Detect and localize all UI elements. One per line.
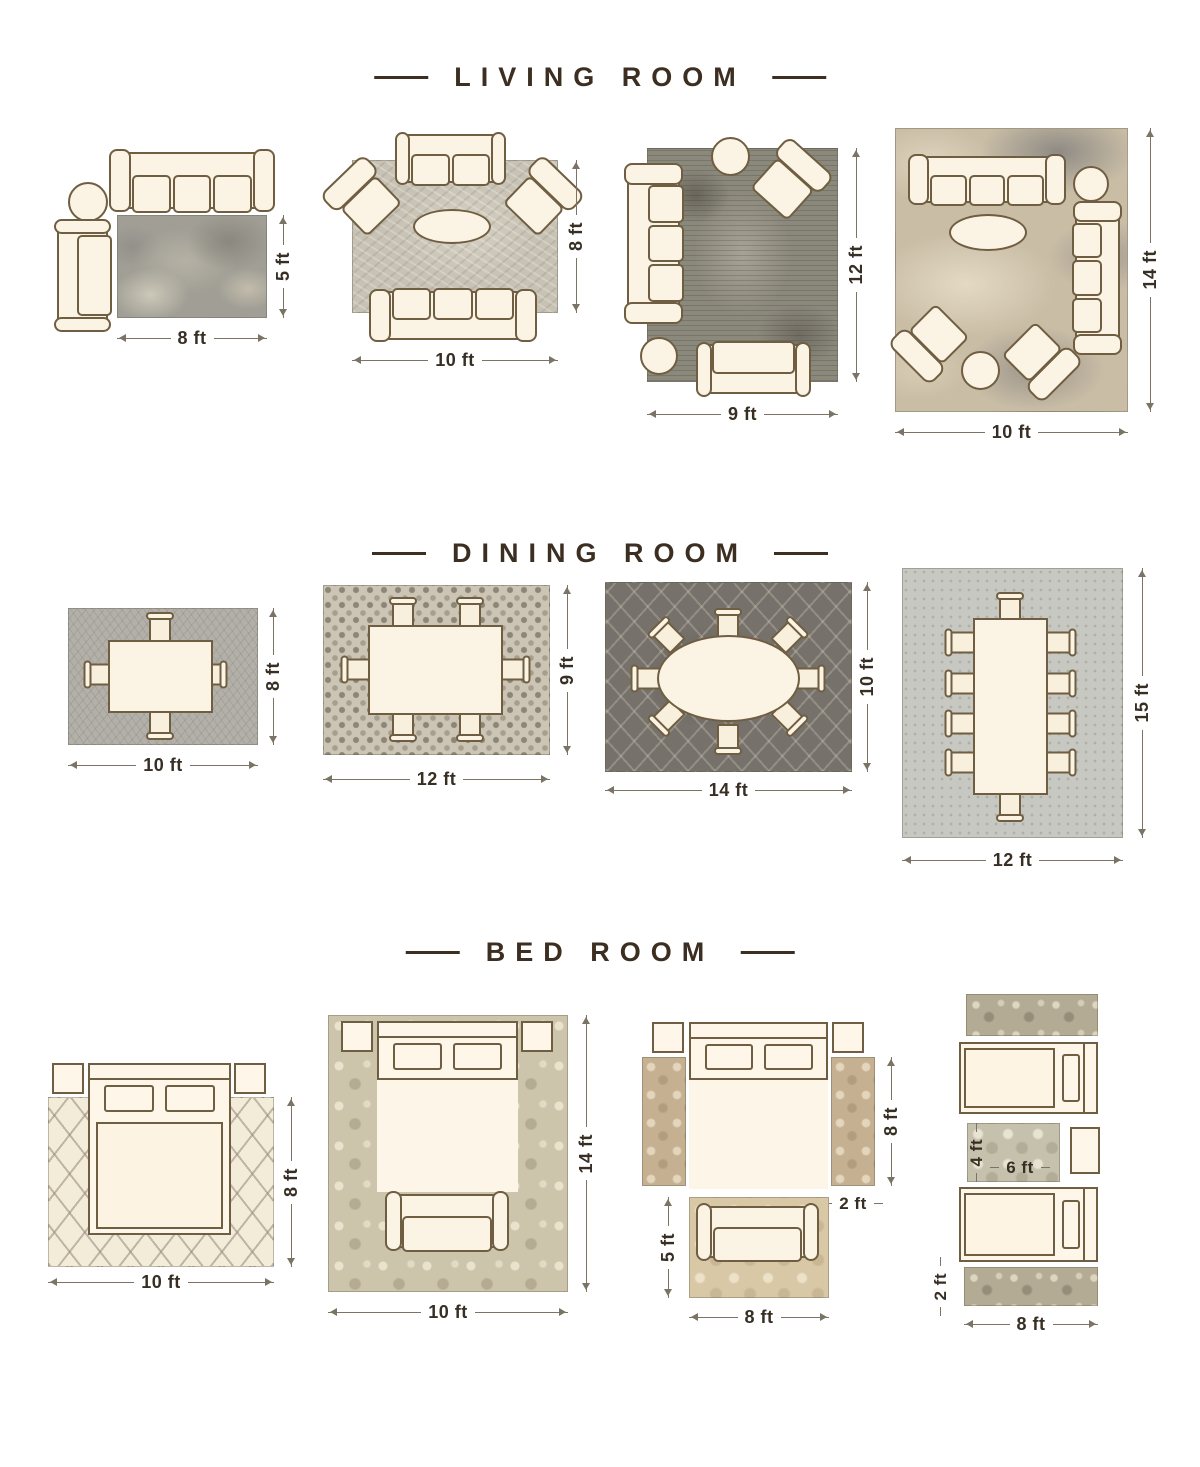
height-dimension: 8 ft [566, 160, 586, 313]
loveseat-icon [398, 134, 503, 183]
nightstand-icon [521, 1021, 553, 1052]
nightstand-icon [652, 1022, 684, 1053]
dining-chair-icon [146, 612, 174, 643]
height-dimension: 5 ft [273, 215, 293, 318]
height-dimension: 15 ft [1132, 568, 1152, 838]
runner-width-dimension: 2 ft [824, 1193, 882, 1213]
dining-table-icon [973, 618, 1048, 795]
bench-icon [699, 1206, 816, 1258]
oval-coffee-table-icon [413, 209, 491, 244]
front-rug-width-dimension: 8 ft [689, 1307, 829, 1327]
nightstand-icon [52, 1063, 84, 1094]
width-dimension: 10 ft [352, 350, 558, 370]
dining-table-icon [368, 625, 503, 715]
round-side-table-icon [68, 182, 108, 222]
width-dimension: 14 ft [605, 780, 852, 800]
dining-table-icon [108, 640, 213, 713]
oval-coffee-table-icon [949, 214, 1027, 251]
sofa-icon [627, 167, 680, 320]
width-dimension: 10 ft [328, 1302, 568, 1322]
section-title-text: DINING ROOM [452, 538, 748, 569]
dining-chair-icon [945, 749, 976, 777]
height-dimension: 8 ft [263, 608, 283, 745]
section-title-bed-room: BED ROOM [406, 937, 795, 968]
round-side-table-icon [711, 137, 750, 176]
dining-chair-icon [1046, 710, 1077, 738]
dining-chair-icon [341, 656, 372, 684]
height-dimension: 14 ft [1140, 128, 1160, 412]
title-rule-left [374, 76, 428, 79]
width-dimension: 10 ft [68, 755, 258, 775]
dining-chair-icon [945, 710, 976, 738]
title-rule-left [406, 951, 460, 954]
title-rule-right [774, 552, 828, 555]
round-side-table-icon [961, 351, 1000, 390]
front-rug-height-dimension: 5 ft [658, 1197, 678, 1298]
twin-bed-icon [959, 1187, 1098, 1262]
height-dimension: 9 ft [557, 585, 577, 755]
dining-chair-icon [456, 711, 484, 742]
height-dimension: 12 ft [846, 148, 866, 382]
loveseat-icon [699, 344, 808, 394]
width-dimension: 12 ft [902, 850, 1123, 870]
title-rule-right [740, 951, 794, 954]
runner-rug [966, 994, 1098, 1036]
bed-icon [377, 1021, 518, 1192]
sofa-icon [912, 156, 1062, 203]
dining-chair-icon [456, 597, 484, 628]
section-title-text: BED ROOM [486, 937, 715, 968]
nightstand-icon [234, 1063, 266, 1094]
runner-length-dimension: 8 ft [964, 1314, 1098, 1334]
dining-chair-icon [500, 656, 531, 684]
height-dimension: 8 ft [281, 1097, 301, 1267]
width-dimension: 8 ft [117, 328, 267, 348]
center-rug-height-dimension: 4 ft [966, 1123, 986, 1182]
dining-chair-icon [945, 670, 976, 698]
nightstand-icon [1070, 1127, 1100, 1174]
title-rule-right [772, 76, 826, 79]
area-rug-8x5 [117, 215, 267, 318]
bed-icon [88, 1063, 231, 1235]
section-title-living-room: LIVING ROOM [374, 62, 826, 93]
nightstand-icon [832, 1022, 864, 1053]
sofa-icon [373, 291, 533, 340]
dining-chair-icon [714, 724, 742, 755]
dining-chair-icon [1046, 749, 1077, 777]
dining-chair-icon [996, 791, 1024, 822]
oval-dining-table-icon [657, 635, 800, 722]
dining-chair-icon [389, 597, 417, 628]
dining-chair-icon [1046, 670, 1077, 698]
section-title-text: LIVING ROOM [454, 62, 746, 93]
bench-icon [388, 1194, 506, 1248]
runner-rug [964, 1267, 1098, 1306]
sofa-icon [113, 152, 271, 209]
dining-chair-icon [146, 709, 174, 740]
side-runner-rug [642, 1057, 686, 1186]
width-dimension: 9 ft [647, 404, 838, 424]
height-dimension: 10 ft [857, 582, 877, 772]
dining-chair-icon [1046, 629, 1077, 657]
width-dimension: 10 ft [48, 1272, 274, 1292]
round-side-table-icon [1073, 166, 1109, 202]
center-rug-width-dimension: 6 ft [984, 1157, 1056, 1177]
bench-icon [57, 222, 108, 329]
height-dimension: 14 ft [576, 1015, 596, 1292]
side-runner-rug [831, 1057, 875, 1186]
width-dimension: 10 ft [895, 422, 1128, 442]
round-side-table-icon [640, 337, 678, 375]
sofa-icon [1075, 205, 1120, 351]
runner-length-dimension: 8 ft [881, 1057, 901, 1186]
twin-bed-icon [959, 1042, 1098, 1114]
rug-size-guide: LIVING ROOM 8 ft 5 ft 10 ft 8 ft [0, 0, 1200, 1467]
runner-width-dimension: 2 ft [930, 1262, 950, 1311]
dining-chair-icon [945, 629, 976, 657]
dining-chair-icon [389, 711, 417, 742]
title-rule-left [372, 552, 426, 555]
nightstand-icon [341, 1021, 373, 1052]
width-dimension: 12 ft [323, 769, 550, 789]
bed-icon [689, 1022, 828, 1189]
section-title-dining-room: DINING ROOM [372, 538, 828, 569]
